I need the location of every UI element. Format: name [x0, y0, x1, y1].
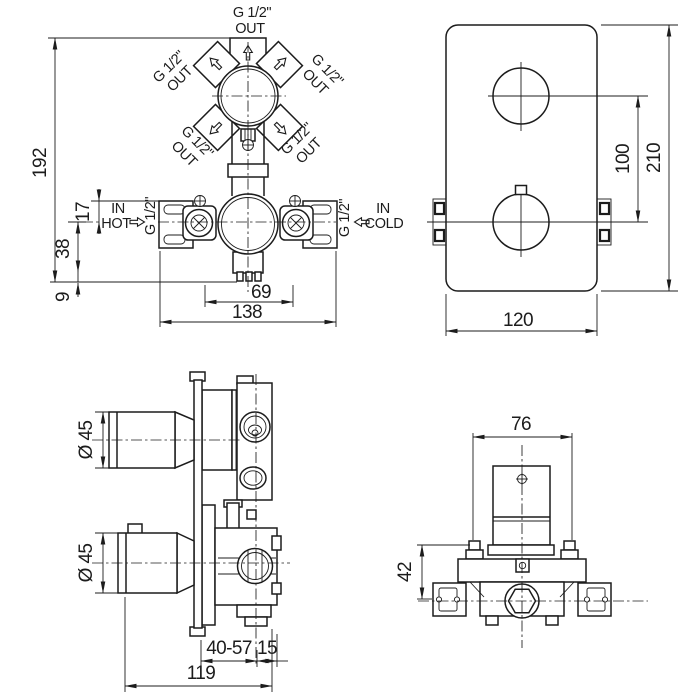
outlet-label-dir: OUT	[235, 21, 265, 37]
protection-box	[493, 466, 550, 545]
inlet-stub	[227, 503, 239, 529]
dim-axis-to-base: 38	[53, 222, 86, 272]
clip-icon	[600, 230, 609, 241]
fixing-bolt-right	[564, 541, 575, 550]
front-view: G 1/2" OUT G 1/2" OUT G 1/2" OUT G 1/2" …	[30, 5, 403, 327]
wall-plate-edge	[194, 380, 202, 628]
dim-label: 100	[613, 144, 634, 174]
dim-label: 17	[73, 202, 94, 222]
dim-label: 192	[30, 148, 51, 178]
inlet-cold-label: COLD	[365, 216, 404, 232]
trim-plate	[446, 25, 597, 291]
dim-label: 38	[53, 239, 74, 259]
inlet-cold-label: IN	[376, 201, 390, 217]
dim-label: 138	[232, 302, 262, 323]
dim-label: 42	[395, 562, 416, 582]
dim-label: 40-57	[206, 638, 252, 659]
dim-label: 15	[257, 638, 277, 659]
rough-in-view: 76 42	[395, 414, 648, 648]
dim-label: 119	[187, 663, 216, 684]
dim-label: 210	[644, 143, 665, 173]
dim-base-offset: 9	[53, 272, 78, 302]
outlet-label-thread: G 1/2"	[233, 5, 271, 21]
inlet-hot-label: IN	[111, 201, 125, 217]
dim-label: Ø 45	[76, 421, 97, 460]
dim-plate-width: 120	[446, 294, 597, 336]
dim-label: 9	[53, 292, 74, 302]
side-view: Ø 45 Ø 45 40-57 15 119	[76, 372, 290, 692]
clip-icon	[435, 230, 444, 241]
dim-label: 76	[511, 414, 531, 435]
cartridge-side	[238, 549, 273, 584]
clip-icon	[600, 203, 609, 214]
drawing-canvas: G 1/2" OUT G 1/2" OUT G 1/2" OUT G 1/2" …	[0, 0, 700, 700]
inlet-hot-label: HOT	[101, 216, 131, 232]
dim-handle-spacing: 100	[613, 96, 638, 222]
cartridge-notch	[516, 186, 527, 195]
dim-label: 69	[251, 282, 271, 303]
dim-cartridge-offset: 15	[257, 634, 288, 667]
inlet-hot-thread: G 1/2"	[143, 197, 159, 235]
technical-drawing: G 1/2" OUT G 1/2" OUT G 1/2" OUT G 1/2" …	[0, 0, 700, 700]
clip-icon	[435, 203, 444, 214]
dim-label: Ø 45	[76, 544, 97, 583]
fixing-bolt-left	[469, 541, 480, 550]
dim-label: 120	[503, 310, 533, 331]
inlet-cold-thread: G 1/2"	[337, 199, 353, 237]
trim-plate-view: 100 210 120	[427, 25, 678, 336]
valve-front-section	[202, 390, 232, 470]
